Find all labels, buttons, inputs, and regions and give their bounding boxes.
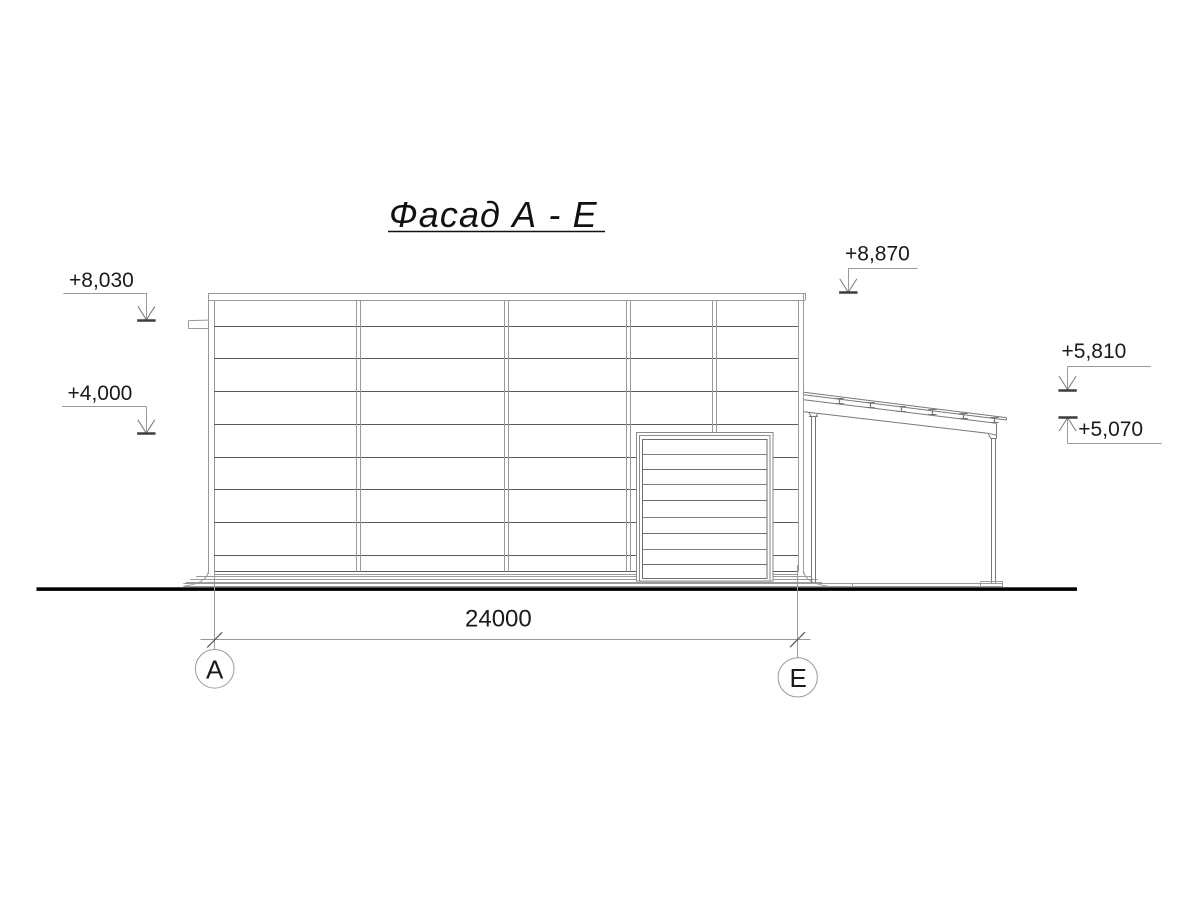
svg-text:А: А: [206, 655, 224, 685]
svg-text:+5,070: +5,070: [1078, 418, 1143, 441]
svg-text:24000: 24000: [465, 606, 532, 633]
svg-text:+8,030: +8,030: [69, 269, 134, 292]
svg-text:Е: Е: [790, 663, 807, 693]
svg-text:+4,000: +4,000: [68, 382, 133, 405]
svg-text:Фасад А - Е: Фасад А - Е: [389, 194, 598, 235]
svg-text:+8,870: +8,870: [845, 243, 910, 266]
svg-text:+5,810: +5,810: [1062, 340, 1127, 363]
